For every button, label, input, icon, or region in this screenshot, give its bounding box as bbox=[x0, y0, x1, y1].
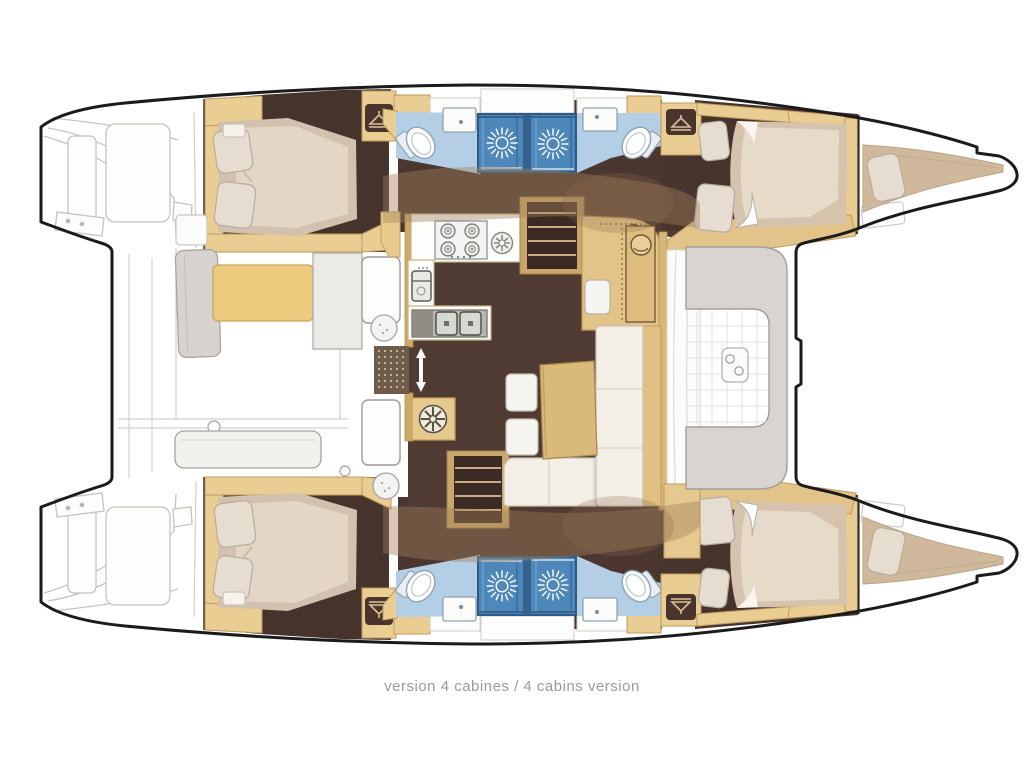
svg-text:version 4 cabines / 4 cabins v: version 4 cabines / 4 cabins version bbox=[384, 678, 640, 695]
